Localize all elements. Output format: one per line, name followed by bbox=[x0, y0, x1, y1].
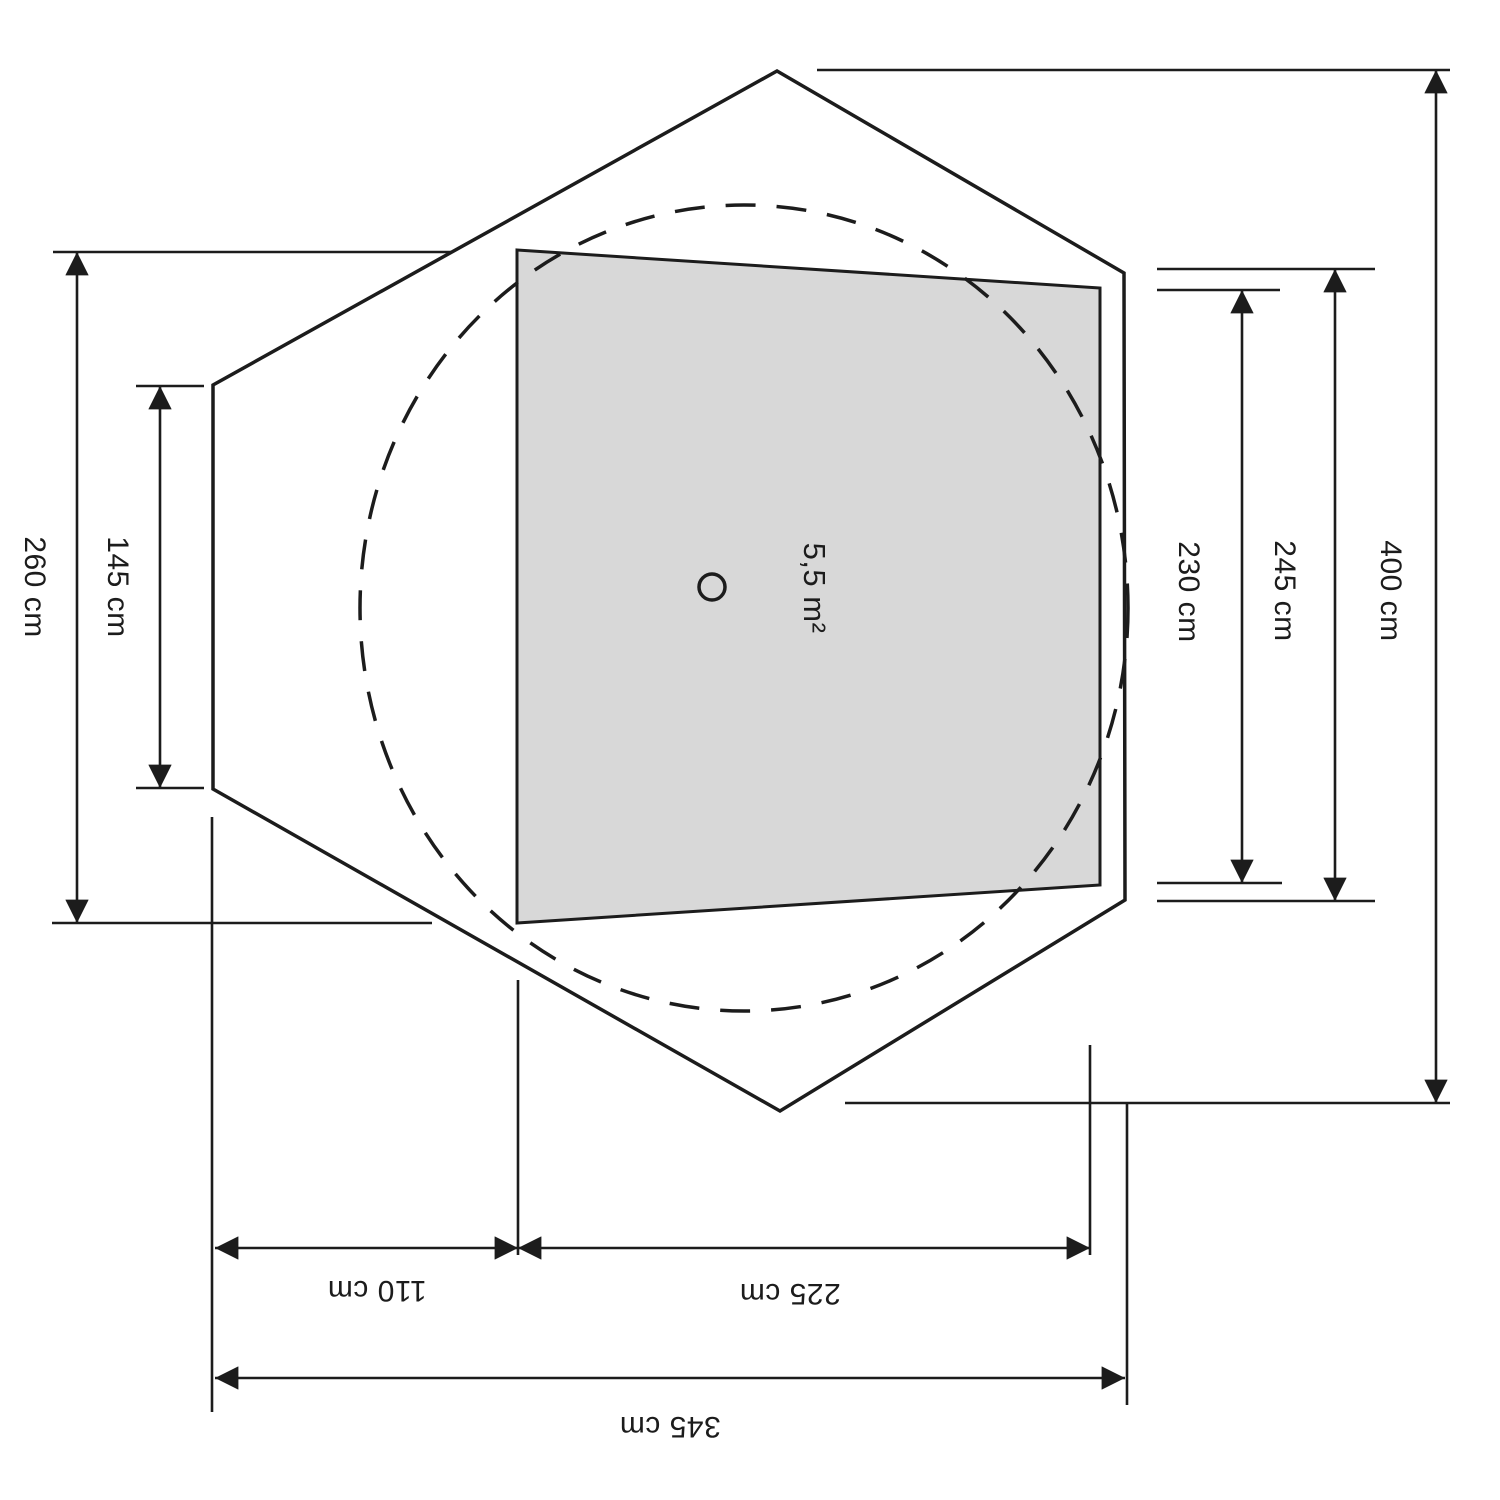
dim-label-260: 260 cm bbox=[18, 536, 51, 637]
dim-label-230: 230 cm bbox=[1172, 541, 1205, 642]
diagram-canvas: 260 cm 145 cm 5,5 m² 230 cm 245 cm 400 c… bbox=[0, 0, 1500, 1500]
dim-label-110: 110 cm bbox=[327, 1274, 426, 1307]
dim-label-145: 145 cm bbox=[101, 536, 134, 637]
dim-label-245: 245 cm bbox=[1268, 540, 1301, 641]
area-label: 5,5 m² bbox=[797, 543, 832, 634]
dim-label-225: 225 cm bbox=[739, 1277, 840, 1310]
dim-label-400: 400 cm bbox=[1374, 540, 1407, 641]
dim-label-345: 345 cm bbox=[619, 1410, 720, 1443]
tent-dimension-diagram: 260 cm 145 cm 5,5 m² 230 cm 245 cm 400 c… bbox=[0, 0, 1500, 1500]
